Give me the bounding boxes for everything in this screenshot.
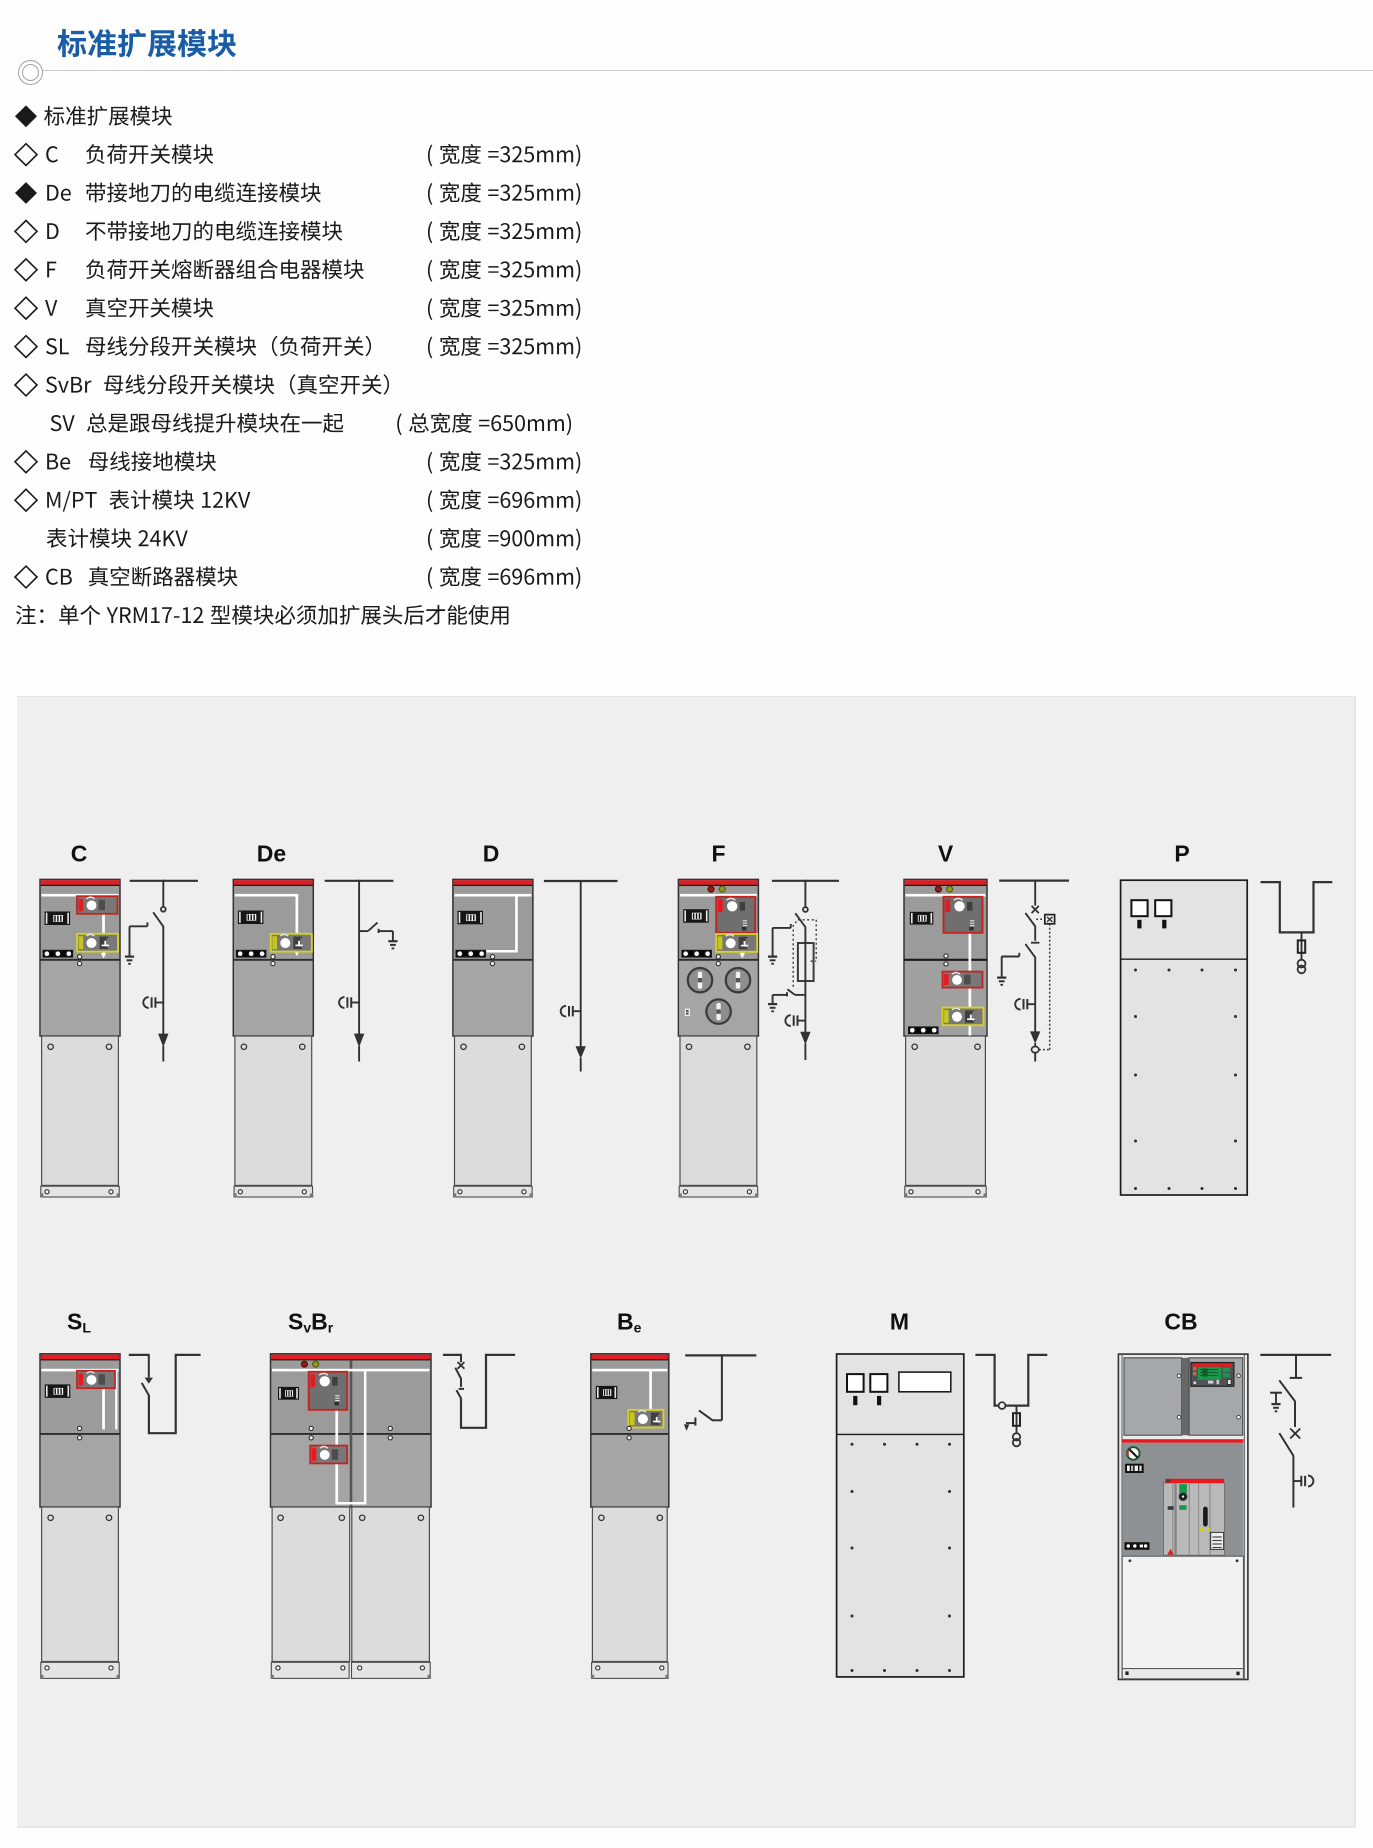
svg-text:Be: Be [617,1309,642,1336]
svg-text:SvBr: SvBr [288,1309,334,1336]
svg-text:P: P [1174,841,1189,867]
svg-text:De: De [257,841,286,867]
svg-text:SL: SL [67,1309,91,1336]
svg-text:C: C [71,841,88,867]
svg-text:V: V [938,841,954,867]
svg-text:D: D [483,841,500,867]
svg-text:M: M [890,1309,909,1335]
svg-text:F: F [711,841,725,867]
svg-text:CB: CB [1164,1309,1197,1335]
